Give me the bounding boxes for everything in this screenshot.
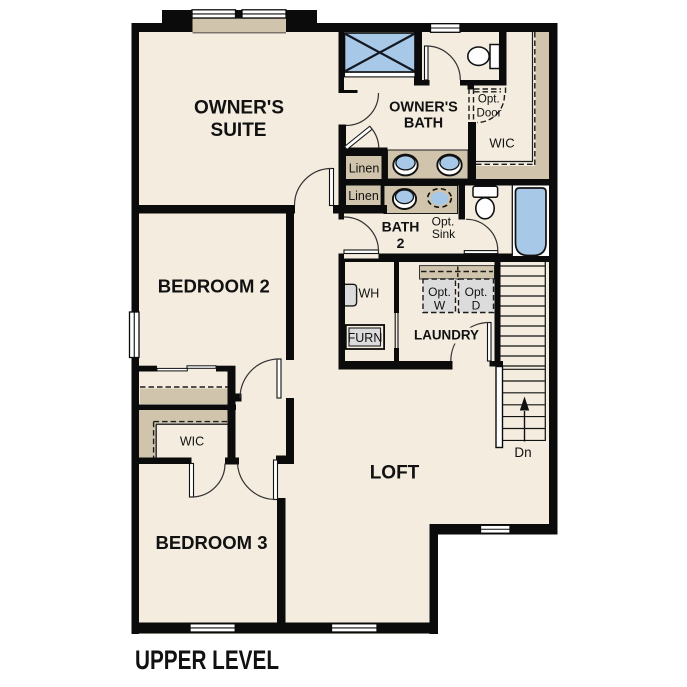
svg-text:2: 2 [397,235,405,251]
svg-text:Linen: Linen [348,189,379,203]
svg-text:SUITE: SUITE [211,120,267,141]
svg-text:WH: WH [359,287,380,301]
svg-text:Opt.: Opt. [428,285,451,299]
svg-text:Opt.: Opt. [465,285,488,299]
svg-text:FURN: FURN [348,331,383,345]
svg-text:BATH: BATH [404,116,443,132]
svg-text:BEDROOM 2: BEDROOM 2 [158,276,270,297]
svg-text:Opt.: Opt. [478,93,500,105]
svg-text:BEDROOM 3: BEDROOM 3 [155,532,267,553]
svg-text:WIC: WIC [489,136,514,151]
svg-text:UPPER LEVEL: UPPER LEVEL [135,645,279,675]
svg-text:LOFT: LOFT [370,463,420,484]
svg-text:Dn: Dn [514,445,531,460]
svg-text:WIC: WIC [180,435,204,449]
svg-text:BATH: BATH [382,219,420,235]
svg-text:D: D [472,299,481,313]
svg-text:Linen: Linen [349,162,380,176]
svg-text:OWNER'S: OWNER'S [194,98,284,119]
svg-text:Sink: Sink [432,227,456,241]
svg-text:Door: Door [477,107,502,119]
svg-text:OWNER'S: OWNER'S [389,100,458,116]
svg-text:W: W [434,299,446,313]
svg-text:LAUNDRY: LAUNDRY [414,328,479,343]
